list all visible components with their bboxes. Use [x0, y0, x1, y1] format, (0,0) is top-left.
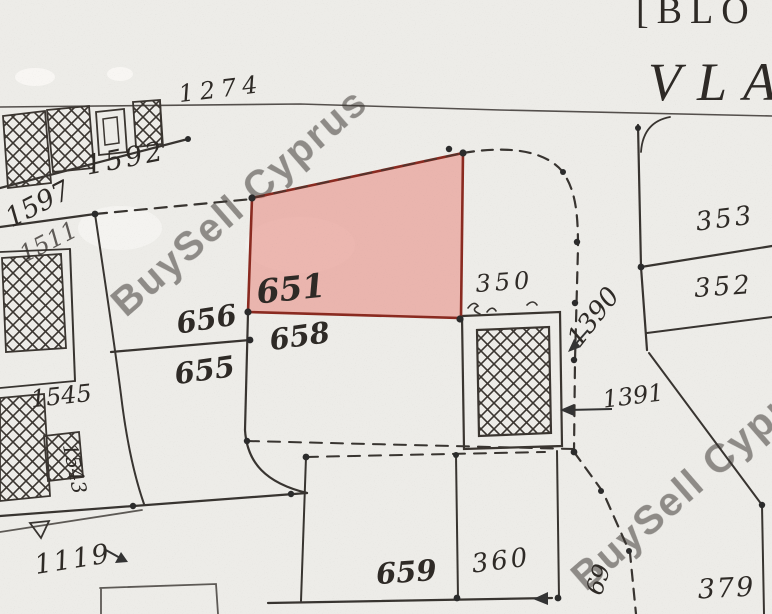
cadastral-map-svg: BuySell Cyprus BuySell Cyprus [0, 0, 772, 614]
cadastral-map-view: BuySell Cyprus BuySell Cyprus [0, 0, 772, 614]
scan-noise-overlay [0, 0, 772, 614]
